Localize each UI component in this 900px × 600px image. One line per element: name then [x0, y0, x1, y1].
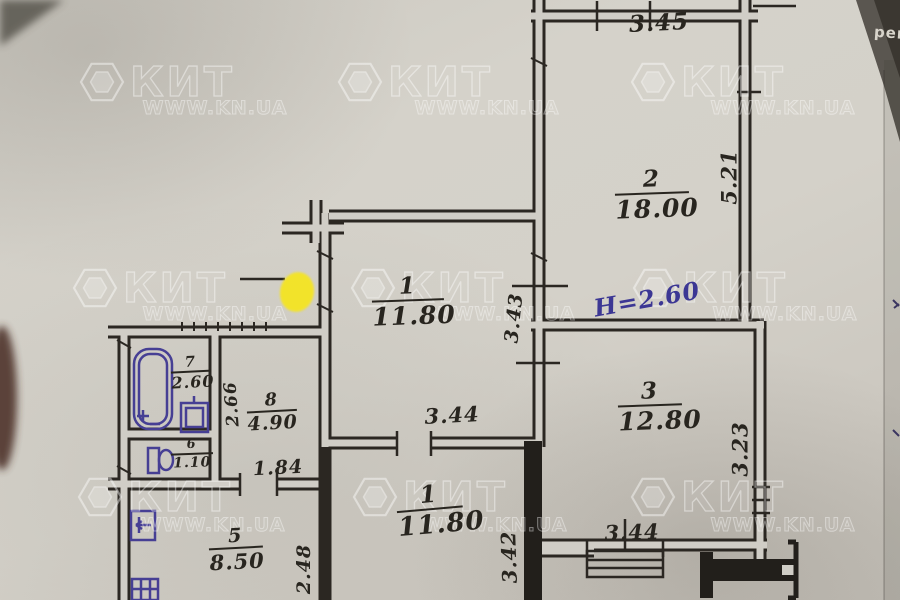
room3-number: 3 — [617, 378, 682, 407]
room2-area: 18.00 — [615, 194, 690, 224]
floorplan-photo: КИТ WWW.KN.UA — [0, 0, 900, 600]
paper-fold-shade — [884, 60, 900, 600]
kitchen-number: 5 — [208, 525, 263, 551]
room-label-kitchen: 5 8.50 — [208, 525, 264, 575]
room3-area: 12.80 — [618, 406, 683, 436]
kitchen-sink-grid — [132, 579, 158, 600]
dim-room3-height: 3.23 — [728, 421, 753, 476]
faucet-icon — [137, 410, 160, 424]
dim-room1-height: 3.42 — [496, 530, 522, 584]
room1-area: 11.80 — [397, 508, 465, 542]
room-label-3: 3 12.80 — [617, 378, 683, 436]
window-room3 — [587, 551, 663, 577]
room-label-6: 6 1.10 — [170, 437, 213, 471]
watermark-url — [711, 514, 856, 536]
sink-inner — [186, 408, 203, 427]
dim-bath-wall: 2.66 — [220, 381, 243, 428]
photo-edge-note: рем — [873, 23, 900, 43]
room-label-corridor: 1 11.80 — [371, 273, 445, 331]
dim-hall-width: 3.44 — [424, 401, 480, 429]
bathroom-number: 7 — [170, 354, 211, 375]
dim-room3-window: 3.44 — [604, 519, 660, 546]
watermark-url — [143, 303, 288, 325]
hall8-number: 8 — [246, 390, 297, 414]
bathroom-area: 2.60 — [171, 373, 212, 393]
dim-hall-door: 1.84 — [252, 456, 303, 481]
watermark-url — [143, 97, 288, 119]
hall8-area: 4.90 — [247, 412, 298, 435]
dim-kitchen-height: 2.48 — [293, 544, 315, 594]
photo-corner-shadow — [0, 0, 64, 46]
room-label-7: 7 2.60 — [170, 354, 212, 393]
photo-left-edge-blur — [0, 326, 17, 470]
dim-top-width: 3.45 — [628, 8, 689, 38]
watermark-url — [415, 97, 560, 119]
wc-area: 1.10 — [171, 455, 214, 472]
watermark-url — [713, 303, 858, 325]
corridor-area: 11.80 — [372, 301, 445, 331]
room-label-8: 8 4.90 — [246, 390, 298, 436]
corridor-number: 1 — [371, 273, 444, 303]
dim-room2-height: 5.21 — [717, 149, 742, 204]
kitchen-area: 8.50 — [209, 549, 264, 575]
watermark-url — [711, 97, 856, 119]
wc-number: 6 — [170, 437, 213, 455]
toilet-tank-icon — [148, 448, 159, 473]
room2-number: 2 — [614, 166, 689, 196]
room-label-2: 2 18.00 — [614, 166, 690, 224]
room-label-1: 1 11.80 — [395, 479, 466, 542]
wall-balcony-pier — [700, 552, 713, 598]
